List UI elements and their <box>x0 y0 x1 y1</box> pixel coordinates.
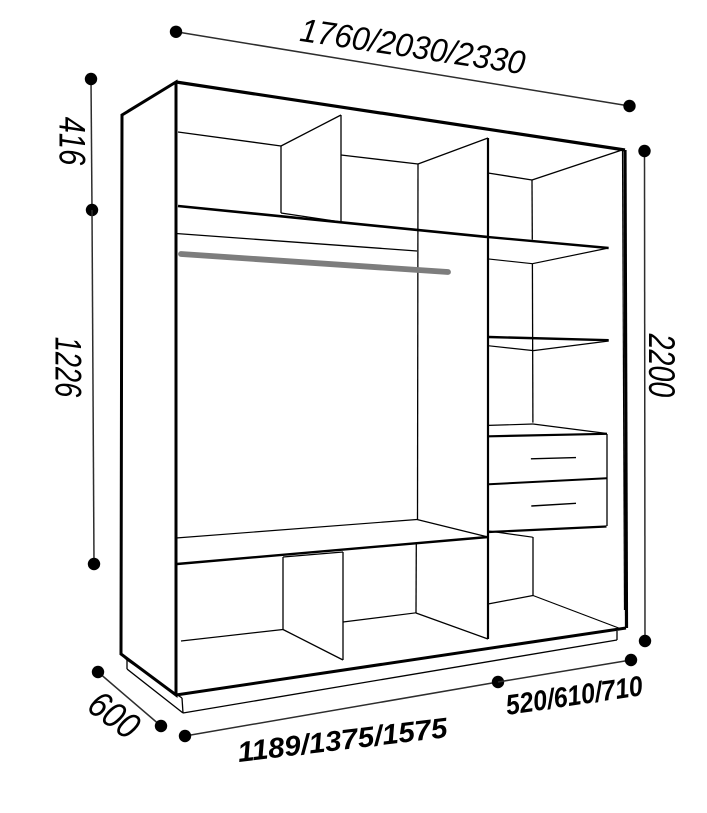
svg-text:416: 416 <box>52 117 93 166</box>
svg-text:2200: 2200 <box>641 333 682 398</box>
svg-text:1226: 1226 <box>47 337 88 398</box>
